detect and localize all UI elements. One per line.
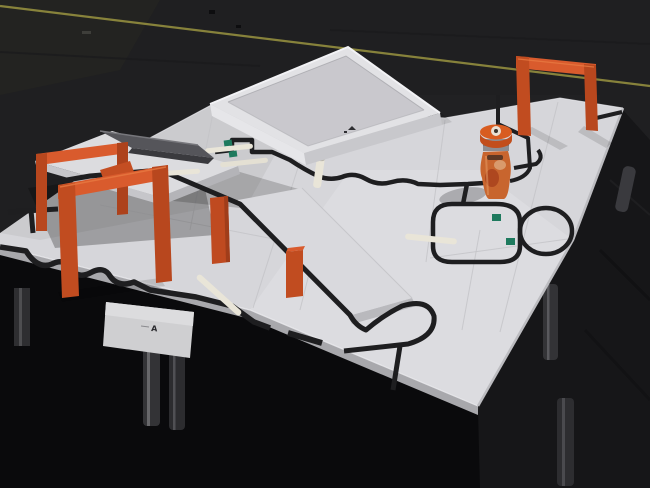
green-marker	[224, 139, 233, 146]
victim-jar	[480, 125, 512, 200]
gate-leg	[36, 153, 47, 231]
green-marker	[229, 150, 238, 157]
floor-mark	[209, 10, 215, 14]
green-marker	[492, 214, 501, 221]
leg-highlight	[19, 288, 22, 346]
floor-mark	[236, 25, 241, 28]
gate-leg	[584, 64, 598, 131]
jar-label-band	[487, 155, 503, 160]
green-marker	[506, 238, 515, 245]
gate-leg	[516, 56, 531, 136]
leg-highlight	[562, 398, 565, 486]
jar-label-art	[494, 160, 506, 170]
jar-cap-logo-center	[494, 129, 498, 133]
arena-photo: A	[0, 0, 650, 488]
table-leg	[543, 284, 558, 360]
deck-support-post	[210, 196, 230, 264]
table-leg	[557, 398, 574, 486]
scene-canvas: A	[0, 0, 650, 488]
evac-logo-mark	[344, 131, 347, 133]
ramp-support-post	[286, 246, 305, 298]
post-body	[286, 250, 303, 298]
leg-highlight	[547, 284, 550, 360]
floor-speck	[82, 31, 91, 34]
